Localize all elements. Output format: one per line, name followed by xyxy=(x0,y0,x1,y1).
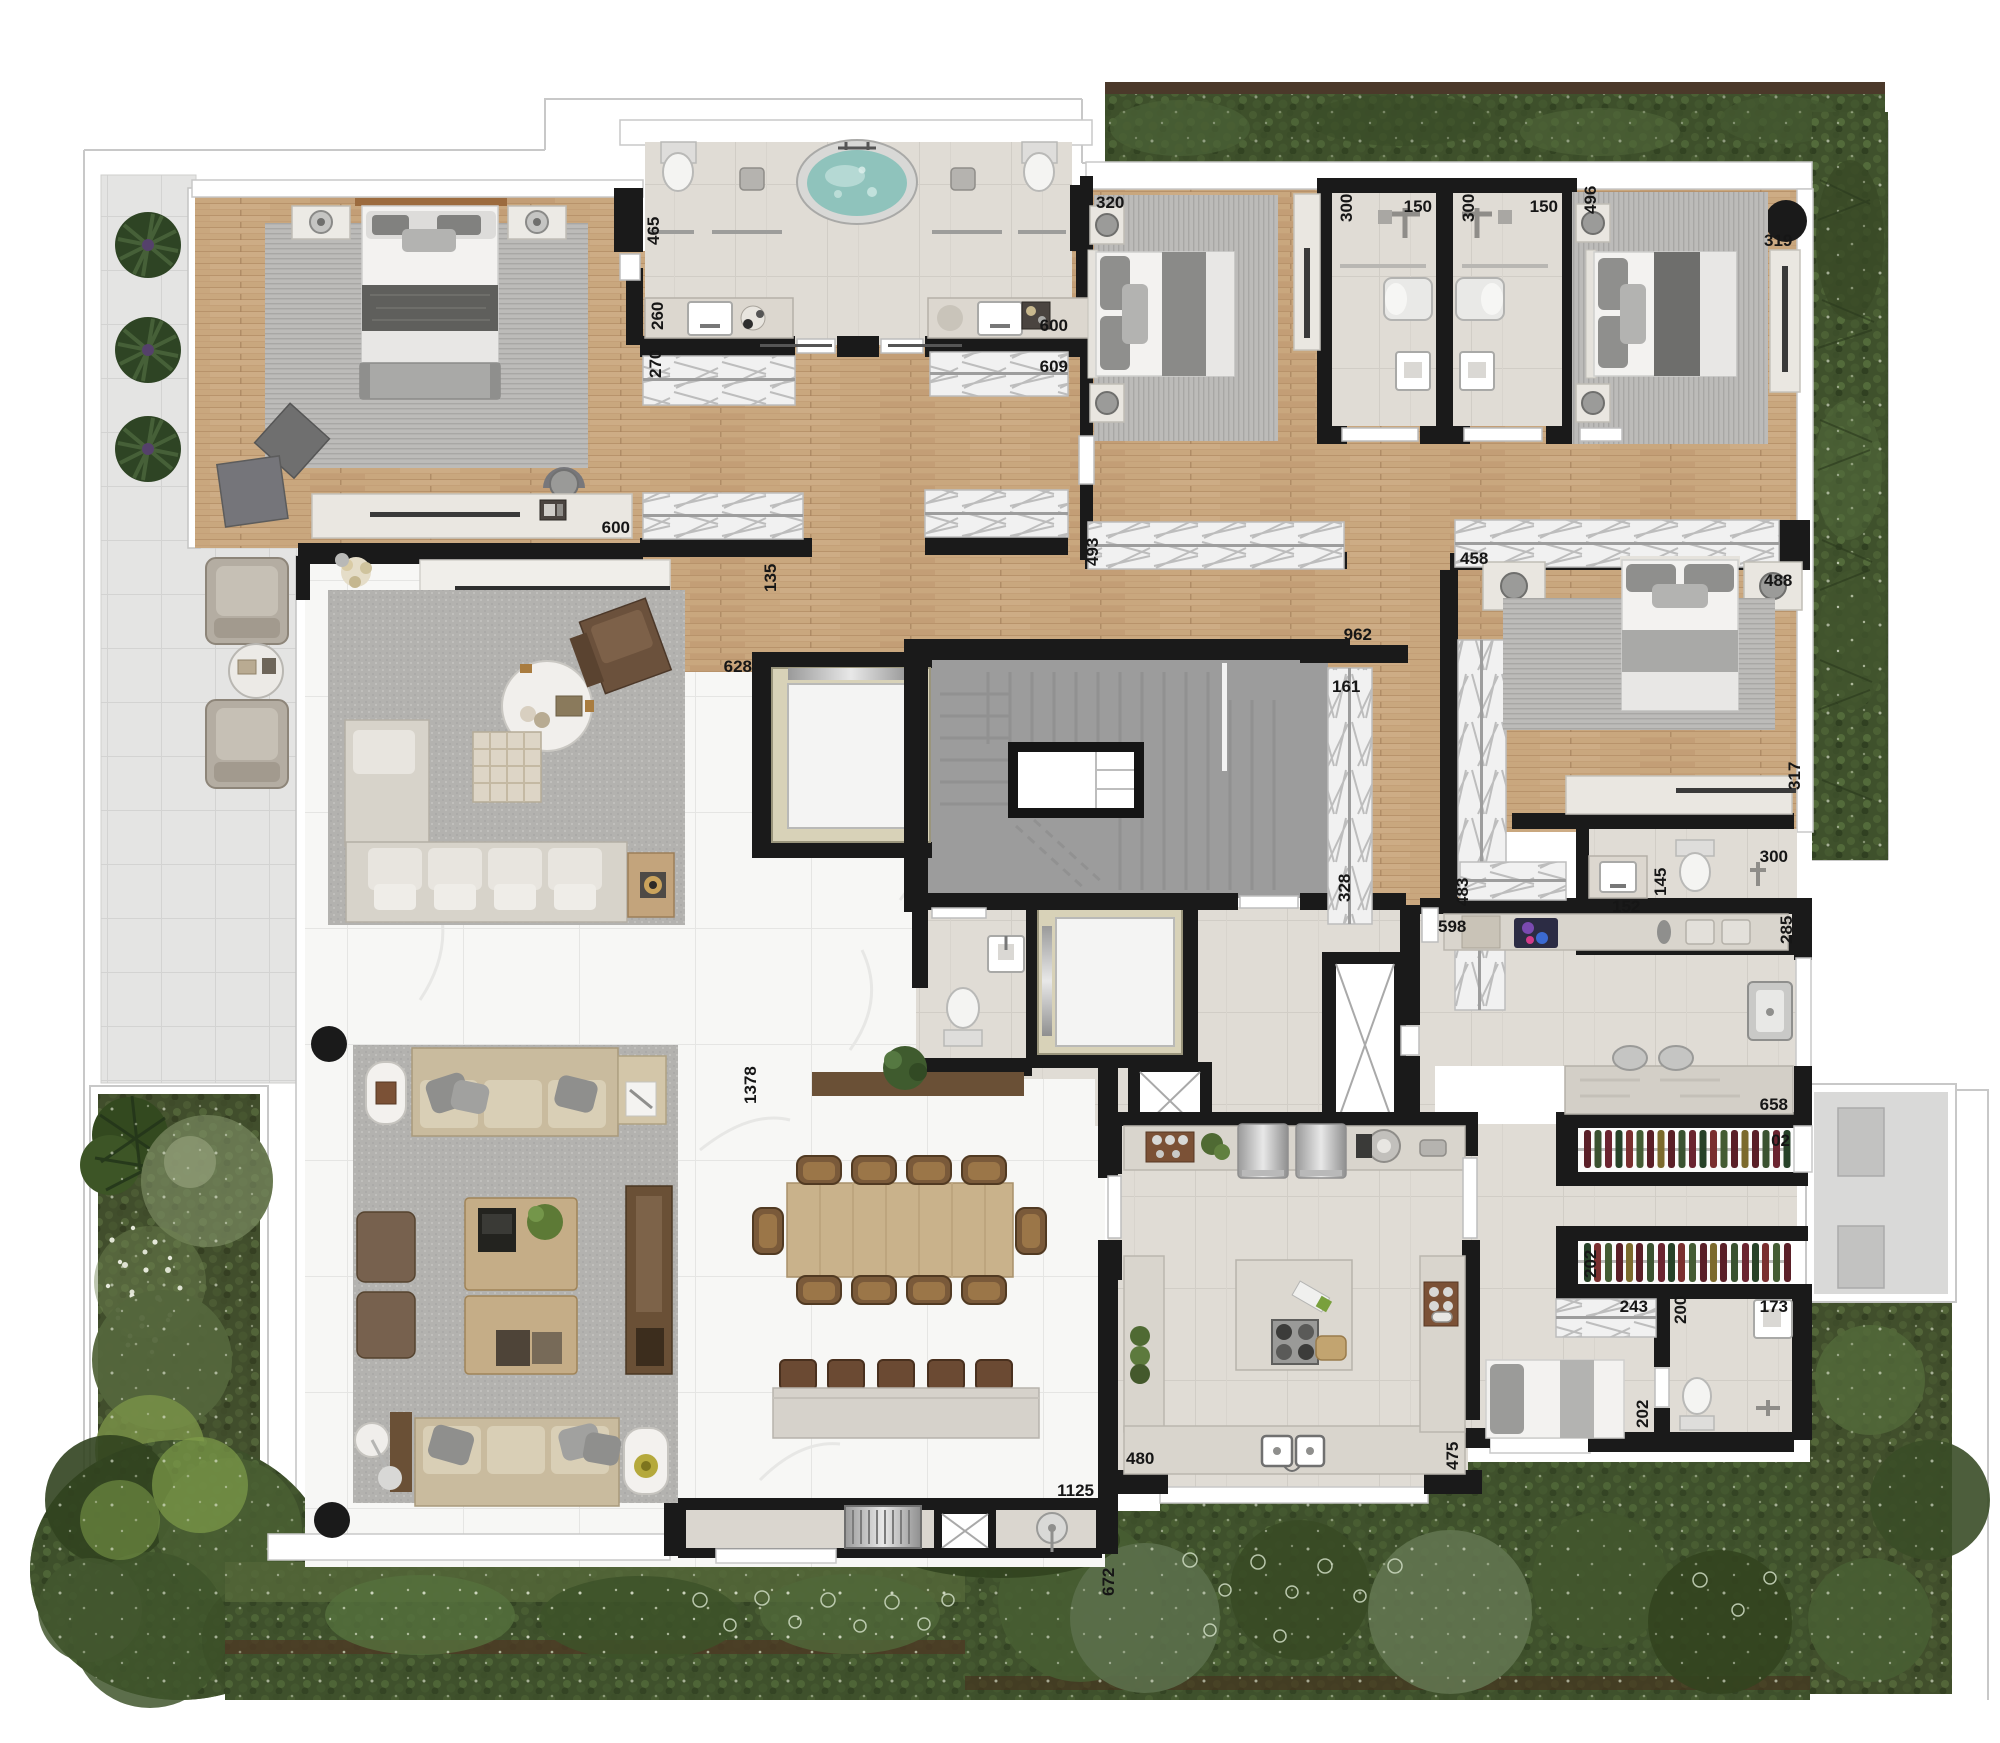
svg-text:150: 150 xyxy=(1404,197,1432,216)
svg-text:260: 260 xyxy=(648,302,667,330)
svg-text:200: 200 xyxy=(1671,1296,1690,1324)
svg-text:658: 658 xyxy=(1760,1095,1788,1114)
svg-text:628: 628 xyxy=(724,657,752,676)
svg-text:300: 300 xyxy=(1760,847,1788,866)
svg-text:173: 173 xyxy=(1760,1297,1788,1316)
svg-text:161: 161 xyxy=(1332,677,1360,696)
svg-text:600: 600 xyxy=(1040,316,1068,335)
svg-text:609: 609 xyxy=(1040,357,1068,376)
svg-text:1125: 1125 xyxy=(1057,1481,1094,1500)
svg-text:480: 480 xyxy=(1126,1449,1154,1468)
svg-text:458: 458 xyxy=(1460,549,1488,568)
svg-text:320: 320 xyxy=(1096,193,1124,212)
svg-text:202: 202 xyxy=(1633,1400,1652,1428)
svg-text:135: 135 xyxy=(761,564,780,592)
svg-text:202: 202 xyxy=(1581,1250,1600,1278)
svg-text:488: 488 xyxy=(1764,571,1792,590)
svg-text:270: 270 xyxy=(646,350,665,378)
svg-text:493: 493 xyxy=(1083,538,1102,566)
svg-text:145: 145 xyxy=(1651,868,1670,896)
svg-text:328: 328 xyxy=(1335,874,1354,902)
svg-text:672: 672 xyxy=(1099,1568,1118,1596)
svg-text:475: 475 xyxy=(1443,1442,1462,1470)
svg-text:483: 483 xyxy=(1453,878,1472,906)
svg-text:465: 465 xyxy=(644,217,663,245)
svg-text:300: 300 xyxy=(1337,194,1356,222)
svg-text:962: 962 xyxy=(1344,625,1372,644)
svg-text:243: 243 xyxy=(1620,1297,1648,1316)
svg-text:285: 285 xyxy=(1777,916,1796,944)
svg-text:150: 150 xyxy=(1530,197,1558,216)
svg-text:598: 598 xyxy=(1438,917,1466,936)
svg-text:319: 319 xyxy=(1764,231,1792,250)
svg-text:496: 496 xyxy=(1581,186,1600,214)
svg-text:300: 300 xyxy=(1459,194,1478,222)
svg-text:02: 02 xyxy=(1771,1131,1790,1150)
svg-text:1378: 1378 xyxy=(741,1066,760,1104)
svg-text:600: 600 xyxy=(602,518,630,537)
svg-text:152: 152 xyxy=(1612,897,1640,916)
svg-text:317: 317 xyxy=(1785,762,1804,790)
